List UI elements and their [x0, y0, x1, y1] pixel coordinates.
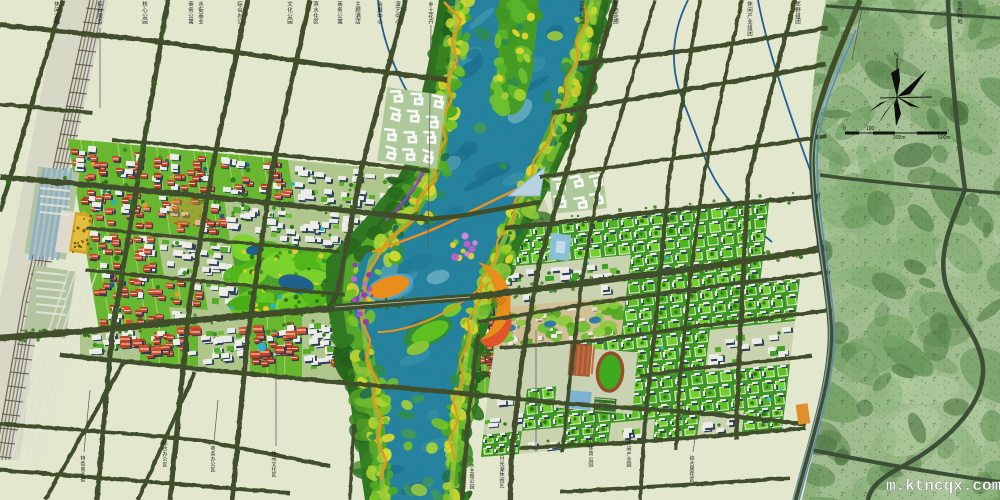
svg-text:m.ktncqx.com: m.ktncqx.com: [886, 477, 1000, 495]
